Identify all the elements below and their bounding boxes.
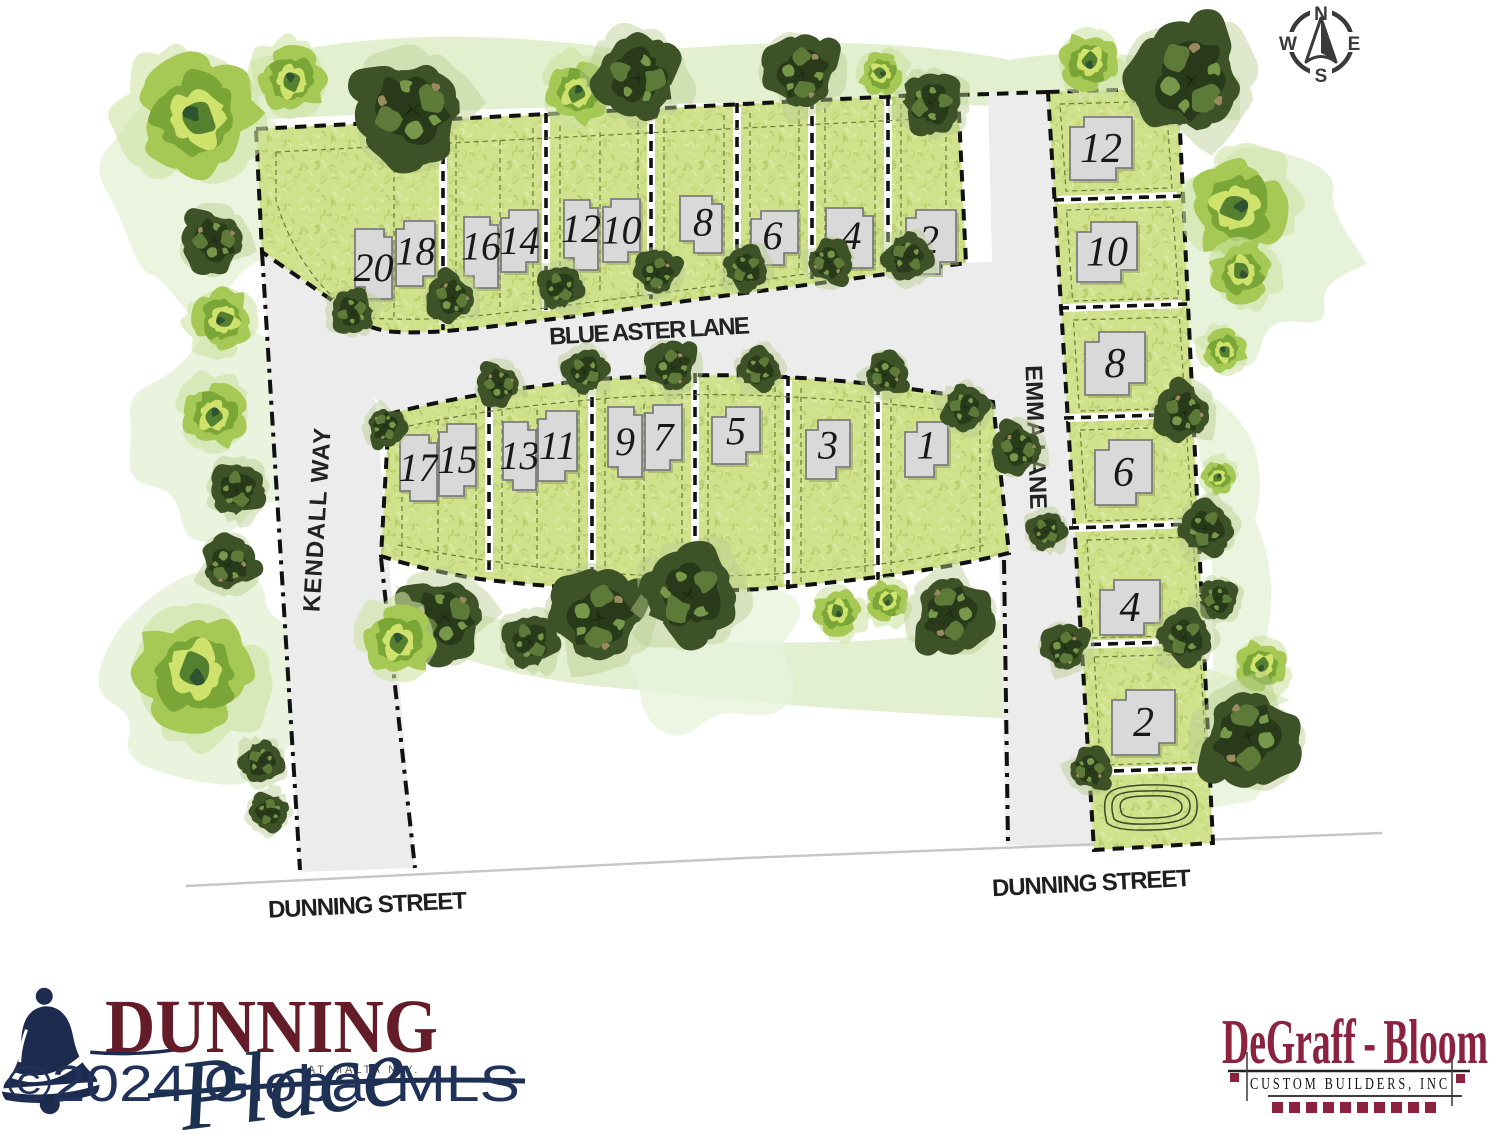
svg-text:CUSTOM BUILDERS, INC: CUSTOM BUILDERS, INC — [1250, 1074, 1450, 1093]
svg-text:DeGraff - Bloom: DeGraff - Bloom — [1222, 1006, 1488, 1077]
svg-text:1: 1 — [917, 422, 937, 467]
svg-text:5: 5 — [726, 408, 746, 453]
svg-text:16: 16 — [461, 223, 501, 268]
svg-text:8: 8 — [1105, 341, 1126, 387]
svg-text:©2024 Global MLS: ©2024 Global MLS — [7, 1055, 520, 1112]
svg-text:10: 10 — [1086, 229, 1128, 275]
svg-text:2: 2 — [1133, 700, 1154, 746]
svg-text:3: 3 — [817, 422, 838, 467]
svg-text:8: 8 — [693, 199, 713, 244]
svg-text:4: 4 — [1120, 585, 1141, 631]
svg-text:6: 6 — [1113, 450, 1134, 496]
svg-text:15: 15 — [438, 437, 478, 482]
svg-text:9: 9 — [615, 419, 635, 464]
svg-text:18: 18 — [396, 228, 436, 273]
svg-text:17: 17 — [399, 445, 441, 490]
svg-text:13: 13 — [500, 433, 540, 478]
svg-text:E: E — [1348, 34, 1361, 55]
svg-text:10: 10 — [602, 207, 642, 252]
svg-text:11: 11 — [539, 423, 576, 468]
svg-text:14: 14 — [500, 218, 540, 263]
svg-text:DUNNING STREET: DUNNING STREET — [991, 865, 1192, 902]
svg-text:12: 12 — [1080, 126, 1122, 172]
svg-text:DUNNING STREET: DUNNING STREET — [267, 887, 468, 923]
svg-text:S: S — [1315, 66, 1328, 87]
svg-text:7: 7 — [654, 414, 676, 459]
svg-text:W: W — [1279, 34, 1297, 55]
svg-text:12: 12 — [561, 206, 601, 251]
svg-text:20: 20 — [354, 245, 394, 290]
